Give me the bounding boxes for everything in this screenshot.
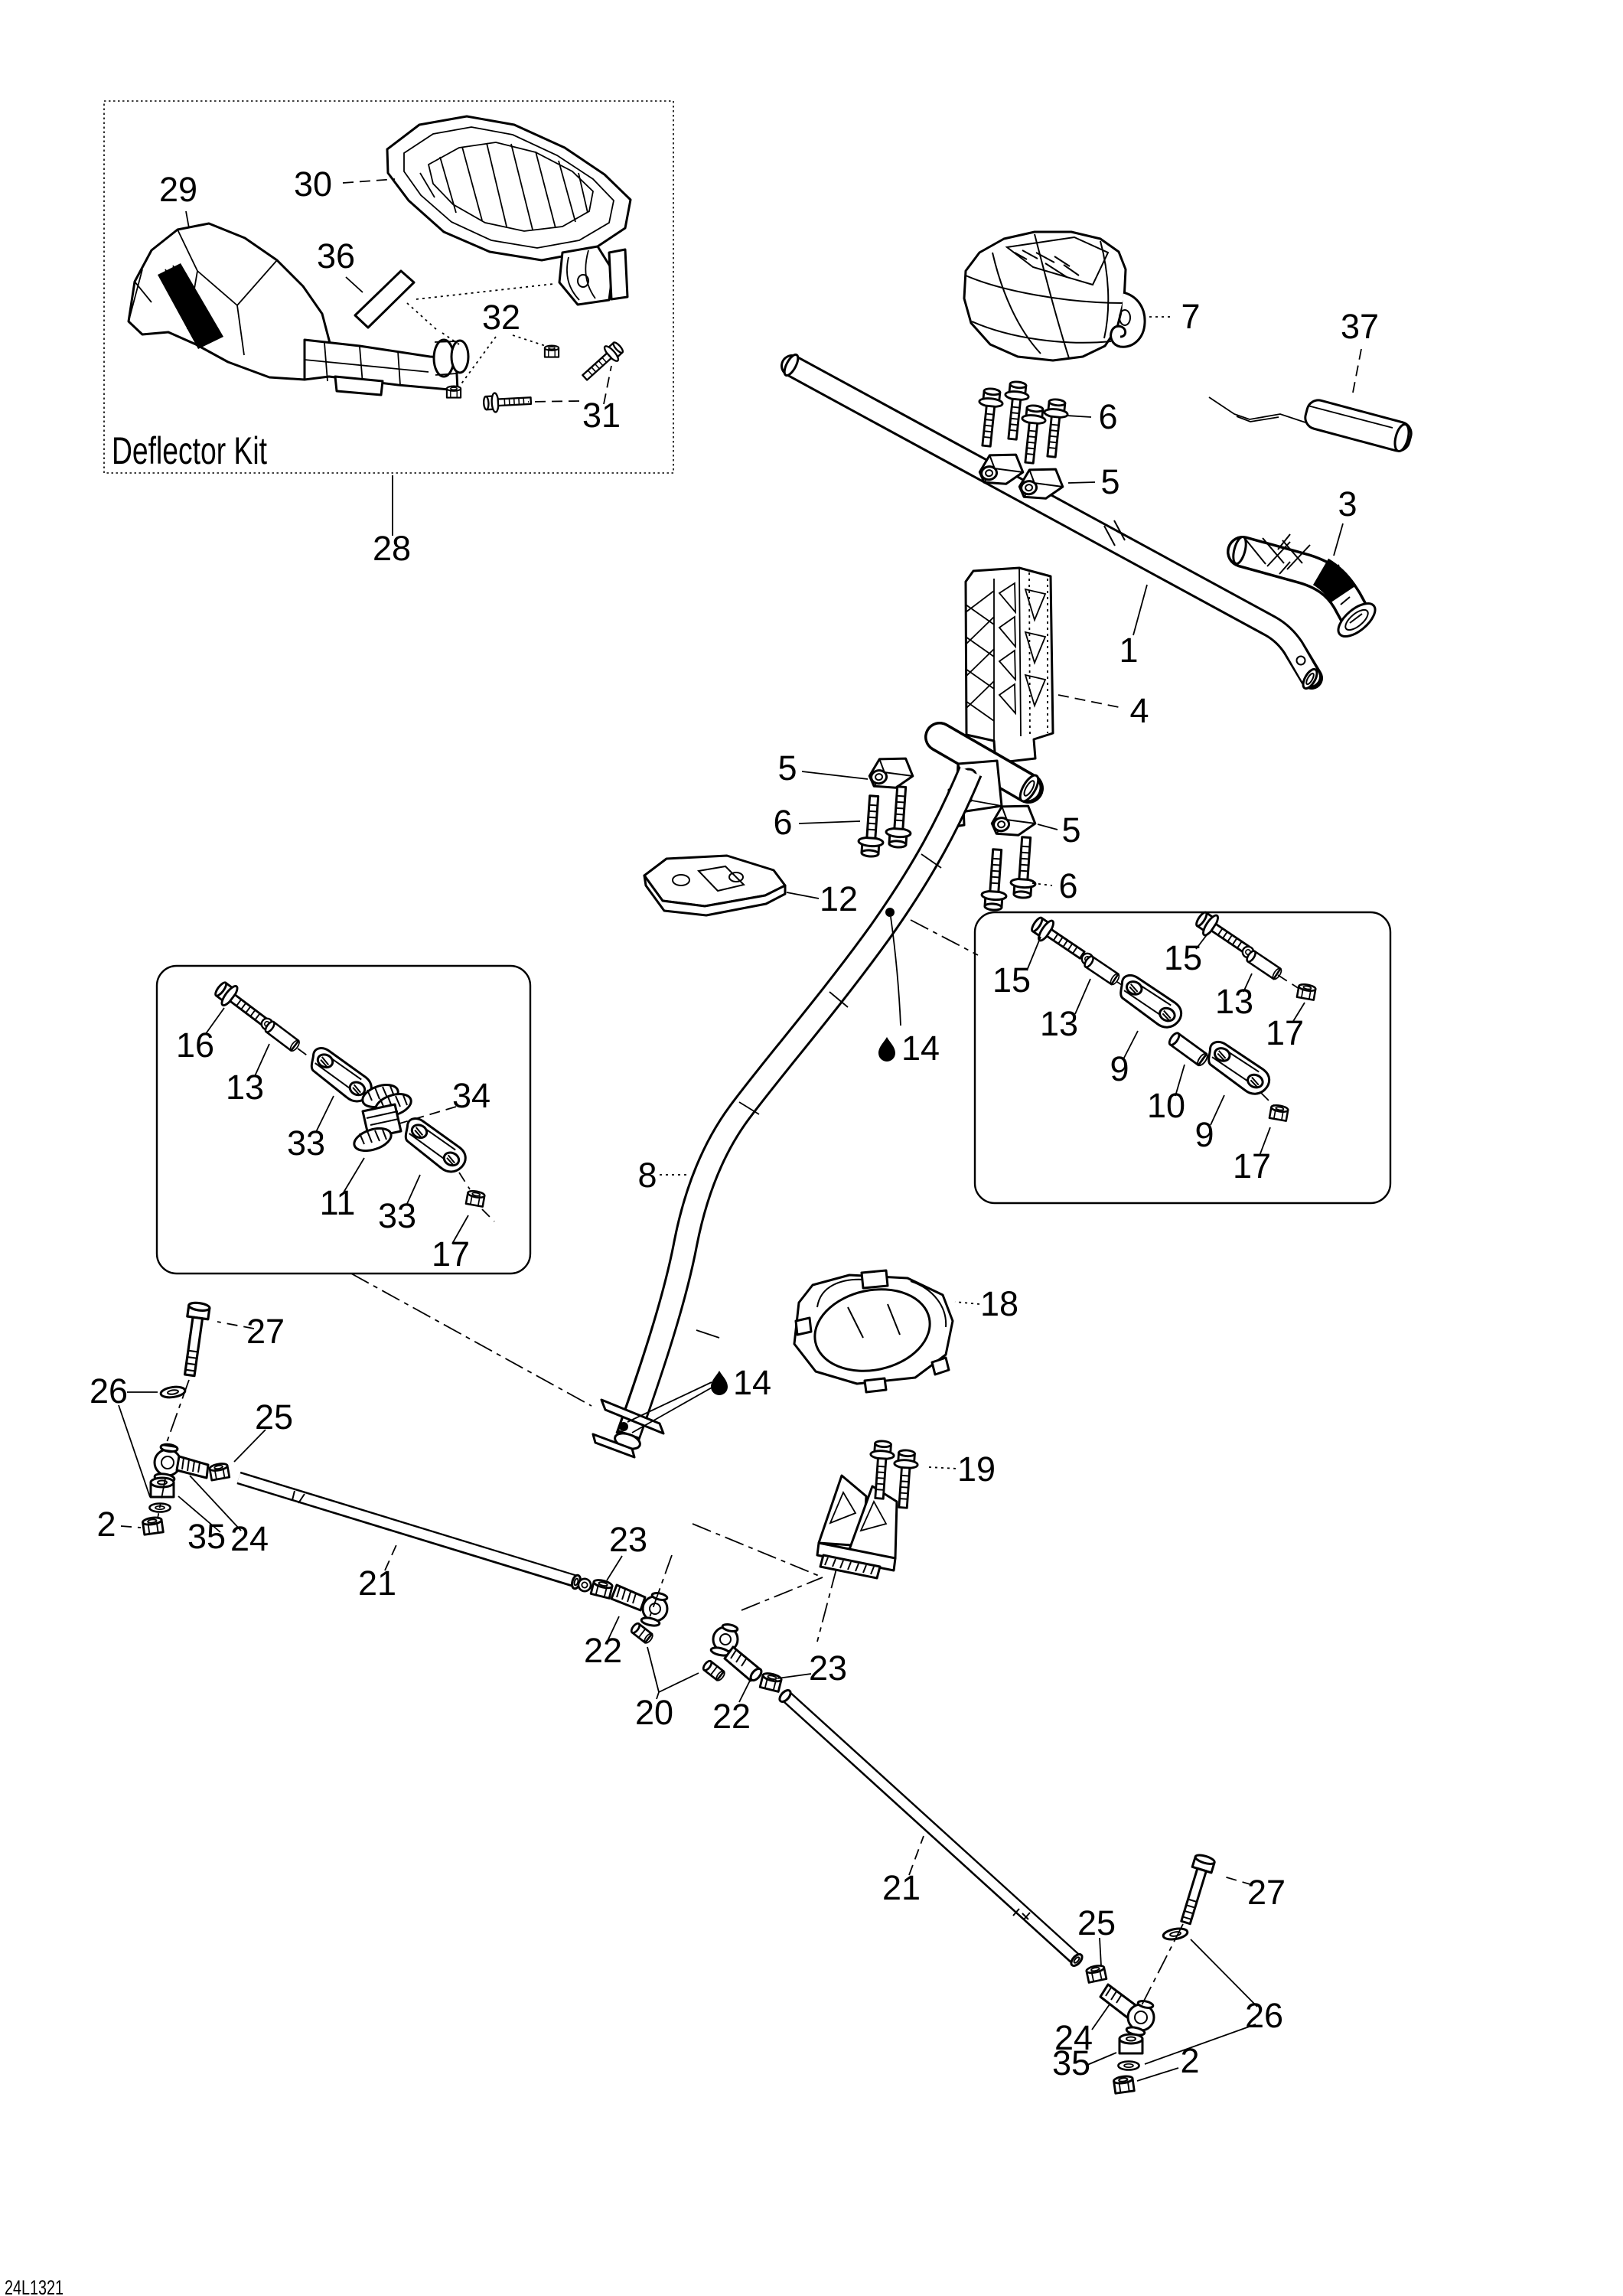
svg-text:27: 27 <box>246 1312 285 1351</box>
svg-text:32: 32 <box>482 298 520 337</box>
svg-text:33: 33 <box>378 1196 416 1235</box>
svg-text:1: 1 <box>1119 631 1138 670</box>
svg-text:17: 17 <box>1233 1146 1271 1186</box>
svg-text:24L1321: 24L1321 <box>5 2276 64 2296</box>
svg-text:3: 3 <box>1338 484 1357 523</box>
svg-text:17: 17 <box>1266 1013 1304 1052</box>
svg-text:30: 30 <box>294 165 332 204</box>
svg-text:6: 6 <box>773 803 792 842</box>
svg-text:31: 31 <box>582 396 621 435</box>
svg-text:27: 27 <box>1247 1873 1286 1912</box>
svg-text:5: 5 <box>1100 462 1119 501</box>
svg-text:10: 10 <box>1147 1086 1185 1125</box>
svg-text:33: 33 <box>287 1124 325 1163</box>
svg-text:25: 25 <box>255 1397 293 1437</box>
svg-text:29: 29 <box>159 170 197 209</box>
svg-text:17: 17 <box>432 1234 470 1274</box>
svg-text:23: 23 <box>809 1649 847 1688</box>
svg-text:2: 2 <box>96 1505 116 1544</box>
svg-text:34: 34 <box>452 1076 490 1115</box>
svg-text:19: 19 <box>957 1450 996 1489</box>
svg-text:9: 9 <box>1194 1115 1214 1154</box>
svg-text:28: 28 <box>373 529 411 568</box>
svg-text:22: 22 <box>712 1697 751 1736</box>
svg-text:11: 11 <box>320 1183 356 1222</box>
svg-text:14: 14 <box>733 1363 771 1402</box>
svg-text:Deflector Kit: Deflector Kit <box>112 429 267 472</box>
svg-text:13: 13 <box>1040 1004 1078 1043</box>
svg-text:6: 6 <box>1098 397 1117 436</box>
svg-text:12: 12 <box>820 879 858 918</box>
svg-text:23: 23 <box>609 1520 647 1559</box>
svg-text:15: 15 <box>992 960 1031 1000</box>
svg-text:36: 36 <box>317 236 355 276</box>
svg-text:6: 6 <box>1058 866 1077 905</box>
svg-text:26: 26 <box>90 1371 128 1411</box>
svg-text:26: 26 <box>1245 1996 1283 2035</box>
svg-text:9: 9 <box>1110 1049 1129 1088</box>
svg-text:8: 8 <box>637 1156 657 1195</box>
svg-text:18: 18 <box>980 1284 1018 1323</box>
svg-text:35: 35 <box>1052 2043 1090 2082</box>
svg-text:15: 15 <box>1164 938 1202 977</box>
svg-text:16: 16 <box>176 1026 214 1065</box>
svg-text:37: 37 <box>1341 307 1379 346</box>
svg-text:13: 13 <box>226 1068 264 1107</box>
svg-text:7: 7 <box>1181 297 1200 336</box>
svg-text:21: 21 <box>882 1868 921 1907</box>
svg-text:14: 14 <box>901 1029 940 1068</box>
svg-text:35: 35 <box>187 1517 226 1556</box>
svg-text:22: 22 <box>584 1631 622 1670</box>
svg-text:4: 4 <box>1129 691 1149 730</box>
svg-text:5: 5 <box>777 748 797 788</box>
svg-text:13: 13 <box>1215 982 1253 1021</box>
svg-text:21: 21 <box>358 1564 396 1603</box>
svg-text:20: 20 <box>635 1693 673 1732</box>
svg-text:5: 5 <box>1061 810 1080 850</box>
svg-text:25: 25 <box>1077 1903 1116 1942</box>
svg-text:2: 2 <box>1180 2041 1199 2080</box>
